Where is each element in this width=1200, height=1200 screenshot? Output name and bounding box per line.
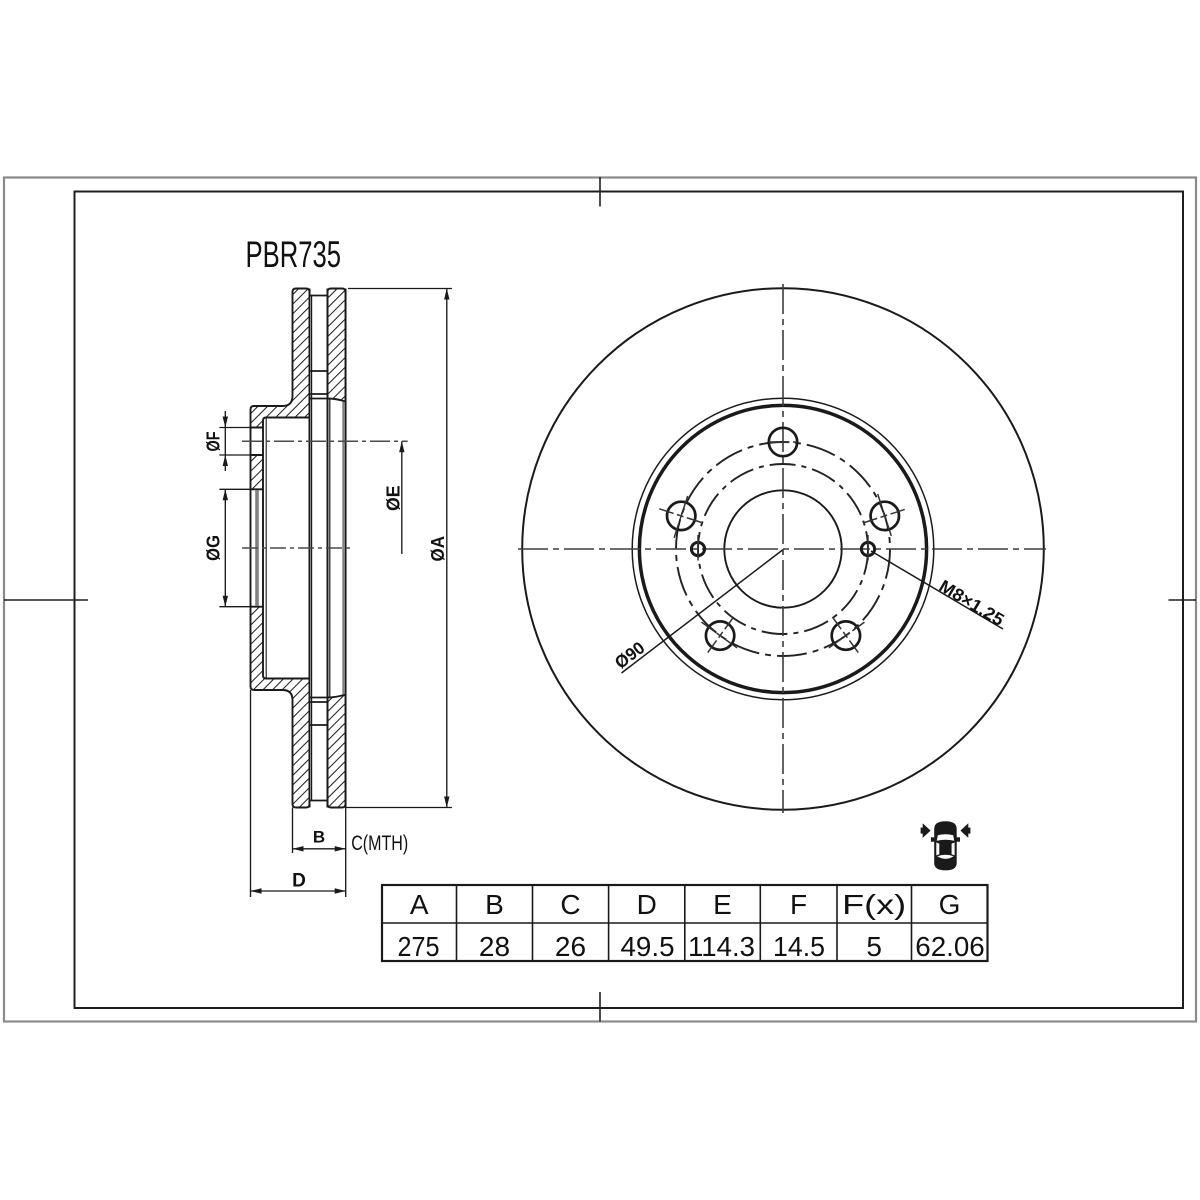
svg-text:F(x): F(x) xyxy=(842,889,906,920)
svg-text:ØF: ØF xyxy=(203,431,223,451)
svg-text:F: F xyxy=(790,889,807,920)
svg-text:ØG: ØG xyxy=(203,535,223,561)
svg-text:14.5: 14.5 xyxy=(773,931,825,962)
svg-text:62.06: 62.06 xyxy=(915,931,985,962)
svg-text:D: D xyxy=(292,871,306,892)
svg-text:PBR735: PBR735 xyxy=(246,234,342,275)
svg-text:26: 26 xyxy=(555,931,586,962)
svg-text:C(MTH): C(MTH) xyxy=(351,832,408,855)
svg-text:B: B xyxy=(313,828,325,847)
svg-text:D: D xyxy=(637,889,657,920)
svg-text:28: 28 xyxy=(479,931,510,962)
svg-text:114.3: 114.3 xyxy=(688,931,755,962)
svg-text:A: A xyxy=(410,889,429,920)
svg-text:49.5: 49.5 xyxy=(621,931,675,962)
svg-text:B: B xyxy=(485,889,504,920)
svg-text:C: C xyxy=(560,889,580,920)
svg-text:G: G xyxy=(939,889,961,920)
svg-text:275: 275 xyxy=(398,931,440,962)
svg-text:ØE: ØE xyxy=(384,486,404,512)
svg-text:E: E xyxy=(713,889,732,920)
svg-text:5: 5 xyxy=(866,931,882,962)
svg-text:ØA: ØA xyxy=(428,536,448,562)
